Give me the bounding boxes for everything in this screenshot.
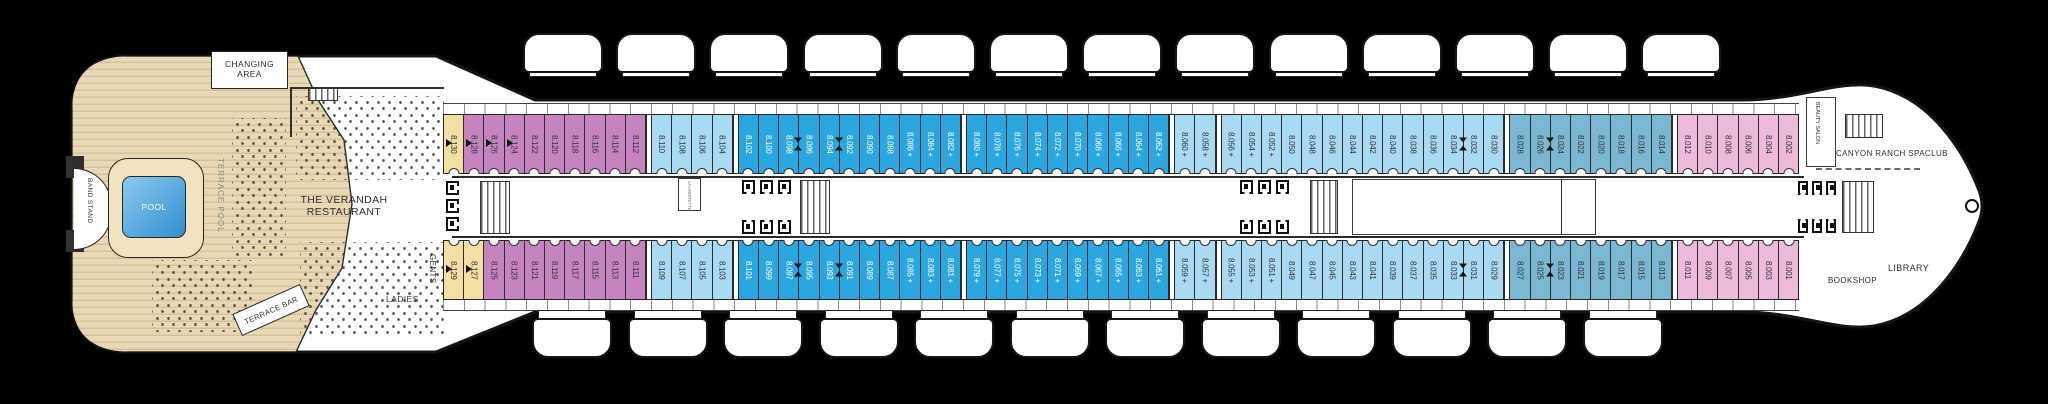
cabin-8.009[interactable]: 8.009 (1698, 241, 1718, 299)
cabin-8.006[interactable]: 8.006 (1739, 115, 1759, 173)
cabin-8.113[interactable]: 8.113 (606, 241, 626, 299)
cabin-number: 8.066 + (1114, 132, 1123, 157)
cabin-number: 8.083 + (926, 258, 935, 283)
cabin-8.086[interactable]: 8.086 + (900, 115, 920, 173)
lifeboat-icon (523, 33, 603, 73)
cabin-8.120[interactable]: 8.120 (545, 115, 565, 173)
cabin-8.102[interactable]: 8.102 (739, 115, 759, 173)
cabin-number: 8.087 (885, 261, 894, 280)
laundrette-label: LAUNDRETTE (687, 181, 692, 211)
cabin-8.066[interactable]: 8.066 + (1109, 115, 1129, 173)
band-stand-label: BAND STAND (86, 178, 93, 223)
cabin-8.071[interactable]: 8.071 + (1048, 241, 1068, 299)
corridor (452, 176, 1804, 238)
core-partition (1561, 180, 1562, 234)
elevator-icon[interactable] (742, 220, 755, 234)
cabin-number: 8.012 (1683, 135, 1692, 154)
lifeboat-icon (1082, 33, 1162, 73)
cabin-number: 8.082 + (946, 132, 955, 157)
cabin-8.078[interactable]: 8.078 + (987, 115, 1007, 173)
cabin-number: 8.113 (611, 261, 620, 279)
cabin-8.089[interactable]: 8.089 (860, 241, 880, 299)
lifeboat-icon (709, 33, 789, 73)
elevator-icon[interactable] (1812, 181, 1822, 195)
cabin-8.063[interactable]: 8.063 + (1129, 241, 1149, 299)
cabin-8.042[interactable]: 8.042 (1363, 115, 1383, 173)
elevator-icon[interactable] (446, 199, 459, 213)
cabin-8.039[interactable]: 8.039 (1383, 241, 1403, 299)
stairs-icon[interactable] (1842, 181, 1874, 233)
cabin-number: 8.032 (1469, 135, 1478, 154)
cabin-8.002[interactable]: 8.002 (1779, 115, 1798, 173)
lifeboat-icon (628, 318, 708, 358)
elevator-icon[interactable] (1276, 180, 1289, 194)
cabin-number: 8.112 (631, 135, 640, 153)
cabin-8.027[interactable]: 8.027 (1510, 241, 1530, 299)
gents-label: GENTS (428, 254, 437, 284)
cabin-number: 8.093 (825, 261, 834, 280)
connecting-doors-icon (794, 138, 803, 151)
cabin-8.057[interactable]: 8.057 + (1195, 241, 1215, 299)
cabin-number: 8.035 (1429, 261, 1438, 280)
cabin-8.065[interactable]: 8.065 + (1109, 241, 1129, 299)
cabin-8.048[interactable]: 8.048 (1302, 115, 1322, 173)
elevator-icon[interactable] (1798, 219, 1808, 233)
elevator-icon[interactable] (1240, 220, 1253, 234)
cabin-number: 8.084 + (926, 132, 935, 157)
cabin-8.114[interactable]: 8.114 (606, 115, 626, 173)
cabin-8.094[interactable]: 8.094 (820, 115, 840, 173)
cabin-8.026[interactable]: 8.026 (1531, 115, 1551, 173)
cabin-8.104[interactable]: 8.104 (713, 115, 733, 173)
lifeboat-icon (723, 318, 803, 358)
cabin-8.128[interactable]: 8.128 (464, 115, 484, 173)
spa-label: CANYON RANCH SPACLUB (1836, 149, 1948, 158)
cabin-8.125[interactable]: 8.125 (484, 241, 504, 299)
cabin-8.008[interactable]: 8.008 (1718, 115, 1738, 173)
cabin-8.109[interactable]: 8.109 (652, 241, 672, 299)
cabin-number: 8.085 + (906, 258, 915, 283)
cabin-8.040[interactable]: 8.040 (1383, 115, 1403, 173)
elevator-icon[interactable] (1240, 180, 1253, 194)
cabin-number: 8.125 (490, 261, 499, 280)
cabin-number: 8.099 (764, 261, 773, 280)
cabin-number: 8.106 (698, 135, 707, 154)
cabin-8.003[interactable]: 8.003 (1759, 241, 1779, 299)
cabin-number: 8.104 (718, 135, 727, 154)
cabin-number: 8.115 (591, 261, 600, 279)
cabin-8.098[interactable]: 8.098 (779, 115, 799, 173)
cabin-8.014[interactable]: 8.014 (1652, 115, 1672, 173)
cabin-number: 8.119 (550, 261, 559, 279)
cabin-8.083[interactable]: 8.083 + (921, 241, 941, 299)
cabin-8.110[interactable]: 8.110 (652, 115, 672, 173)
cabin-number: 8.027 (1515, 261, 1524, 280)
cabin-8.038[interactable]: 8.038 (1403, 115, 1423, 173)
changing-area: CHANGING AREA (211, 51, 288, 89)
cabin-8.119[interactable]: 8.119 (545, 241, 565, 299)
spa-stairs-icon[interactable] (1845, 114, 1883, 138)
cabin-number: 8.102 (744, 135, 753, 154)
lifeboat-icon (616, 33, 696, 73)
cabin-number: 8.043 (1348, 261, 1357, 280)
cabin-number: 8.024 (1556, 135, 1565, 154)
cabin-number: 8.068 + (1093, 132, 1102, 157)
cabin-number: 8.067 + (1093, 258, 1102, 283)
cabin-8.070[interactable]: 8.070 + (1068, 115, 1088, 173)
cabin-8.025[interactable]: 8.025 (1531, 241, 1551, 299)
cabin-number: 8.013 (1657, 261, 1666, 280)
cabin-number: 8.100 (764, 135, 773, 154)
cabin-8.088[interactable]: 8.088 (880, 115, 900, 173)
cabin-number: 8.076 + (1013, 132, 1022, 157)
cabin-number: 8.114 (611, 135, 620, 153)
cabin-number: 8.006 (1744, 135, 1753, 154)
cabin-number: 8.007 (1723, 261, 1732, 280)
cabin-row-port: 8.1308.1288.1268.1248.1228.1208.1188.116… (443, 114, 1799, 174)
cabin-8.056[interactable]: 8.056 + (1222, 115, 1242, 173)
cabin-number: 8.079 + (972, 258, 981, 283)
elevator-icon[interactable] (1276, 220, 1289, 234)
cabin-number: 8.105 (698, 261, 707, 280)
elevator-icon[interactable] (1258, 220, 1271, 234)
stairs-icon[interactable] (480, 181, 510, 234)
stairs-icon[interactable] (1310, 180, 1338, 234)
deck-plan: CHANGING AREA BAND STAND POOL TERRACE PO… (0, 0, 2048, 404)
cabin-number: 8.052 + (1267, 132, 1276, 157)
elevator-icon[interactable] (1258, 180, 1271, 194)
cabin-number: 8.090 (865, 135, 874, 154)
cabin-8.004[interactable]: 8.004 (1759, 115, 1779, 173)
cabin-number: 8.077 + (992, 258, 1001, 283)
cabin-8.019[interactable]: 8.019 (1591, 241, 1611, 299)
cabin-number: 8.008 (1723, 135, 1732, 154)
cabin-8.073[interactable]: 8.073 + (1028, 241, 1048, 299)
connecting-doors-icon (1546, 138, 1555, 151)
connecting-doors-icon (1459, 138, 1468, 151)
cabin-8.072[interactable]: 8.072 + (1048, 115, 1068, 173)
cabin-number: 8.023 (1556, 261, 1565, 280)
cabin-8.043[interactable]: 8.043 (1343, 241, 1363, 299)
connecting-doors-icon (835, 138, 844, 151)
cabin-number: 8.047 (1307, 261, 1316, 280)
cabin-number: 8.091 (845, 261, 854, 280)
cabin-number: 8.121 (530, 261, 539, 280)
cabin-8.077[interactable]: 8.077 + (987, 241, 1007, 299)
cabin-8.097[interactable]: 8.097 (779, 241, 799, 299)
berth-triangle-icon (466, 265, 472, 273)
cabin-8.122[interactable]: 8.122 (525, 115, 545, 173)
stairs-icon[interactable] (800, 180, 830, 234)
cabin-number: 8.041 (1368, 261, 1377, 280)
cabin-8.037[interactable]: 8.037 (1403, 241, 1423, 299)
bow-tip-notch (1966, 200, 1978, 212)
cabin-number: 8.061 + (1154, 258, 1163, 283)
cabin-number: 8.037 (1408, 261, 1417, 280)
cabin-8.028[interactable]: 8.028 (1510, 115, 1530, 173)
cabin-number: 8.062 + (1154, 132, 1163, 157)
lifeboat-icon (896, 33, 976, 73)
cabin-8.069[interactable]: 8.069 + (1068, 241, 1088, 299)
bookshop-label: BOOKSHOP (1828, 276, 1877, 285)
elevator-icon[interactable] (778, 180, 791, 194)
cabin-8.046[interactable]: 8.046 (1323, 115, 1343, 173)
cabin-8.108[interactable]: 8.108 (672, 115, 692, 173)
restaurant-wall (290, 87, 292, 137)
connecting-doors-icon (794, 264, 803, 277)
cabin-number: 8.010 (1703, 135, 1712, 154)
pool-label: POOL (141, 202, 166, 212)
cabin-number: 8.017 (1616, 261, 1625, 280)
lifeboat-icon (1392, 318, 1472, 358)
cabin-8.018[interactable]: 8.018 (1611, 115, 1631, 173)
cabin-number: 8.103 (718, 261, 727, 280)
cabin-number: 8.033 (1449, 261, 1458, 280)
lifeboat-icon (1269, 33, 1349, 73)
cabin-number: 8.070 + (1073, 132, 1082, 157)
cabin-8.121[interactable]: 8.121 (525, 241, 545, 299)
cabin-number: 8.046 (1328, 135, 1337, 154)
cabin-8.099[interactable]: 8.099 (759, 241, 779, 299)
cabin-8.017[interactable]: 8.017 (1611, 241, 1631, 299)
cabin-8.082[interactable]: 8.082 + (941, 115, 961, 173)
berth-triangle-icon (486, 139, 492, 147)
cabin-8.117[interactable]: 8.117 (565, 241, 585, 299)
cabin-number: 8.075 + (1013, 258, 1022, 283)
cabin-8.126[interactable]: 8.126 (484, 115, 504, 173)
cabin-number: 8.004 (1764, 135, 1773, 154)
cabin-8.010[interactable]: 8.010 (1698, 115, 1718, 173)
cabin-8.074[interactable]: 8.074 + (1028, 115, 1048, 173)
cabin-number: 8.053 + (1247, 258, 1256, 283)
cabin-8.111[interactable]: 8.111 (626, 241, 646, 299)
cabin-8.103[interactable]: 8.103 (713, 241, 733, 299)
cabin-number: 8.123 (510, 261, 519, 280)
cabin-8.051[interactable]: 8.051 + (1262, 241, 1282, 299)
cabin-8.087[interactable]: 8.087 (880, 241, 900, 299)
connecting-doors-icon (835, 264, 844, 277)
berth-triangle-icon (446, 265, 452, 273)
elevator-icon[interactable] (1798, 181, 1808, 195)
cabin-8.124[interactable]: 8.124 (505, 115, 525, 173)
cabin-8.106[interactable]: 8.106 (692, 115, 712, 173)
cabin-8.011[interactable]: 8.011 (1678, 241, 1698, 299)
cabin-number: 8.031 (1469, 261, 1478, 280)
cabin-8.047[interactable]: 8.047 (1302, 241, 1322, 299)
elevator-icon[interactable] (1826, 219, 1836, 233)
cabin-number: 8.045 (1328, 261, 1337, 280)
elevator-icon[interactable] (446, 217, 459, 231)
cabin-number: 8.019 (1596, 261, 1605, 280)
cabin-8.062[interactable]: 8.062 + (1149, 115, 1169, 173)
cabin-8.044[interactable]: 8.044 (1343, 115, 1363, 173)
cabin-8.112[interactable]: 8.112 (626, 115, 646, 173)
elevator-icon[interactable] (1812, 219, 1822, 233)
terrace-pool-label: TERRACE POOL (216, 158, 225, 233)
cabin-8.076[interactable]: 8.076 + (1007, 115, 1027, 173)
elevator-icon[interactable] (760, 180, 773, 194)
lifeboat-icon (1175, 33, 1255, 73)
cabin-8.067[interactable]: 8.067 + (1088, 241, 1108, 299)
cabin-8.049[interactable]: 8.049 (1282, 241, 1302, 299)
cabin-number: 8.009 (1703, 261, 1712, 280)
cabin-8.012[interactable]: 8.012 (1678, 115, 1698, 173)
cabin-number: 8.063 + (1134, 258, 1143, 283)
cabin-8.058[interactable]: 8.058 + (1195, 115, 1215, 173)
cabin-8.035[interactable]: 8.035 (1424, 241, 1444, 299)
cabin-8.093[interactable]: 8.093 (820, 241, 840, 299)
cabin-number: 8.022 (1576, 135, 1585, 154)
elevator-icon[interactable] (1826, 181, 1836, 195)
cabin-number: 8.064 + (1134, 132, 1143, 157)
cabin-number: 8.109 (657, 261, 666, 280)
cabin-number: 8.120 (550, 135, 559, 154)
lifeboat-icon (1455, 33, 1535, 73)
cabin-8.007[interactable]: 8.007 (1718, 241, 1738, 299)
cabin-8.054[interactable]: 8.054 + (1242, 115, 1262, 173)
cabin-8.021[interactable]: 8.021 (1571, 241, 1591, 299)
cabin-8.116[interactable]: 8.116 (585, 115, 605, 173)
cabin-number: 8.097 (784, 261, 793, 280)
cabin-8.123[interactable]: 8.123 (505, 241, 525, 299)
cabin-number: 8.110 (657, 135, 666, 153)
cabin-number: 8.095 (805, 261, 814, 280)
cabin-number: 8.111 (631, 261, 640, 278)
lifeboat-icon (1201, 318, 1281, 358)
cabin-number: 8.029 (1489, 261, 1498, 280)
cabin-8.022[interactable]: 8.022 (1571, 115, 1591, 173)
cabin-number: 8.015 (1637, 261, 1646, 280)
lifeboat-icon (1362, 33, 1442, 73)
beauty-salon: BEAUTY SALON (1806, 97, 1836, 167)
cabin-8.053[interactable]: 8.053 + (1242, 241, 1262, 299)
cabin-8.029[interactable]: 8.029 (1484, 241, 1504, 299)
cabin-8.084[interactable]: 8.084 + (921, 115, 941, 173)
cabin-8.061[interactable]: 8.061 + (1149, 241, 1169, 299)
cabin-8.080[interactable]: 8.080 + (967, 115, 987, 173)
cabin-8.052[interactable]: 8.052 + (1262, 115, 1282, 173)
elevator-icon[interactable] (760, 220, 773, 234)
restaurant-stairs-icon[interactable] (308, 88, 338, 101)
cabin-8.005[interactable]: 8.005 (1739, 241, 1759, 299)
elevator-icon[interactable] (778, 220, 791, 234)
cabin-8.101[interactable]: 8.101 (739, 241, 759, 299)
cabin-8.130[interactable]: 8.130 (444, 115, 464, 173)
cabin-8.105[interactable]: 8.105 (692, 241, 712, 299)
elevator-icon[interactable] (446, 181, 459, 195)
lifeboat-icon (819, 318, 899, 358)
cabin-8.015[interactable]: 8.015 (1632, 241, 1652, 299)
cabin-8.059[interactable]: 8.059 + (1175, 241, 1195, 299)
cabin-number: 8.049 (1287, 261, 1296, 280)
cabin-8.127[interactable]: 8.127 (464, 241, 484, 299)
cabin-8.055[interactable]: 8.055 + (1222, 241, 1242, 299)
cabin-number: 8.108 (677, 135, 686, 154)
cabin-number: 8.089 (865, 261, 874, 280)
cabin-8.107[interactable]: 8.107 (672, 241, 692, 299)
lifeboat-icon (1296, 318, 1376, 358)
central-core (1352, 179, 1596, 235)
cabin-8.016[interactable]: 8.016 (1632, 115, 1652, 173)
lifeboat-icon (532, 318, 612, 358)
cabin-8.013[interactable]: 8.013 (1652, 241, 1672, 299)
connecting-doors-icon (1546, 264, 1555, 277)
cabin-number: 8.081 + (946, 258, 955, 283)
cabin-number: 8.020 (1596, 135, 1605, 154)
cabin-number: 8.001 (1784, 261, 1793, 280)
cabin-number: 8.034 (1449, 135, 1458, 154)
lifeboat-icon (1583, 318, 1663, 358)
laundrette: LAUNDRETTE (678, 178, 701, 211)
cabin-8.085[interactable]: 8.085 + (900, 241, 920, 299)
cabin-8.118[interactable]: 8.118 (565, 115, 585, 173)
cabin-number: 8.042 (1368, 135, 1377, 154)
cabin-number: 8.021 (1576, 261, 1585, 280)
lifeboat-icon (1105, 318, 1185, 358)
cabin-number: 8.069 + (1073, 258, 1082, 283)
cabin-number: 8.096 (805, 135, 814, 154)
cabin-number: 8.025 (1536, 261, 1545, 280)
restaurant-tables-lower (300, 242, 444, 334)
cabin-number: 8.118 (570, 135, 579, 153)
cabin-8.090[interactable]: 8.090 (860, 115, 880, 173)
cabin-8.050[interactable]: 8.050 (1282, 115, 1302, 173)
lifeboat-icon (1010, 318, 1090, 358)
cabin-8.100[interactable]: 8.100 (759, 115, 779, 173)
cabin-number: 8.038 (1408, 135, 1417, 154)
cabin-number: 8.088 (885, 135, 894, 154)
cabin-8.001[interactable]: 8.001 (1779, 241, 1798, 299)
cabin-8.045[interactable]: 8.045 (1323, 241, 1343, 299)
cabin-number: 8.028 (1515, 135, 1524, 154)
cabin-8.030[interactable]: 8.030 (1484, 115, 1504, 173)
cabin-number: 8.065 + (1114, 258, 1123, 283)
cabin-number: 8.011 (1683, 261, 1692, 279)
lifeboat-icon (989, 33, 1069, 73)
cabin-8.034[interactable]: 8.034 (1444, 115, 1464, 173)
cabin-number: 8.059 + (1180, 258, 1189, 283)
lifeboat-icon (803, 33, 883, 73)
cabin-number: 8.048 (1307, 135, 1316, 154)
cabin-8.033[interactable]: 8.033 (1444, 241, 1464, 299)
restaurant-label: THE VERANDAH RESTAURANT (288, 194, 400, 218)
cabin-number: 8.018 (1616, 135, 1625, 154)
lifeboat-icon (1641, 33, 1721, 73)
cabin-number: 8.030 (1489, 135, 1498, 154)
cabin-number: 8.074 + (1033, 132, 1042, 157)
cabin-number: 8.071 + (1053, 258, 1062, 283)
cabin-8.041[interactable]: 8.041 (1363, 241, 1383, 299)
berth-triangle-icon (446, 139, 452, 147)
cabin-number: 8.122 (530, 135, 539, 154)
beauty-salon-label: BEAUTY SALON (1814, 102, 1820, 144)
cabin-8.068[interactable]: 8.068 + (1088, 115, 1108, 173)
restaurant-label-line2: RESTAURANT (288, 206, 400, 218)
cabin-8.020[interactable]: 8.020 (1591, 115, 1611, 173)
cabin-8.064[interactable]: 8.064 + (1129, 115, 1149, 173)
cabin-8.060[interactable]: 8.060 + (1175, 115, 1195, 173)
cabin-8.075[interactable]: 8.075 + (1007, 241, 1027, 299)
pool: POOL (122, 176, 186, 238)
cabin-8.079[interactable]: 8.079 + (967, 241, 987, 299)
cabin-8.081[interactable]: 8.081 + (941, 241, 961, 299)
elevator-icon[interactable] (742, 180, 755, 194)
cabin-8.115[interactable]: 8.115 (585, 241, 605, 299)
cabin-8.036[interactable]: 8.036 (1424, 115, 1444, 173)
cabin-number: 8.002 (1784, 135, 1793, 154)
cabin-number: 8.086 + (906, 132, 915, 157)
cabin-8.129[interactable]: 8.129 (444, 241, 464, 299)
